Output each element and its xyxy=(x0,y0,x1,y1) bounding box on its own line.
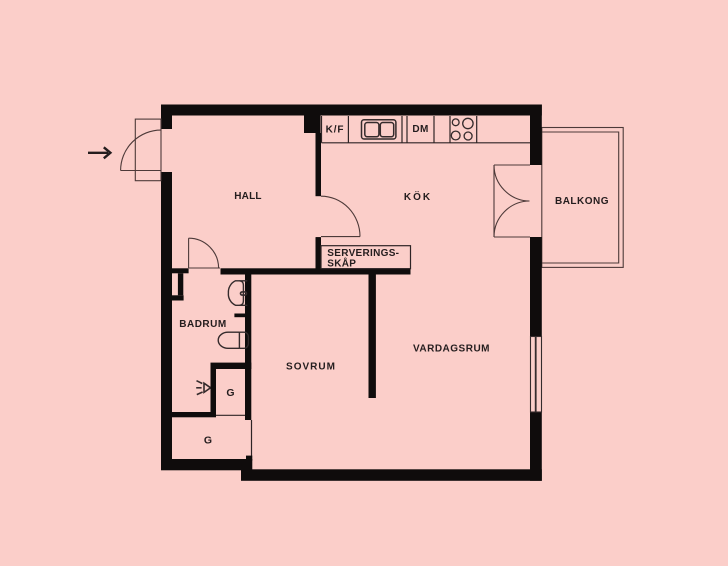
svg-text:SOVRUM: SOVRUM xyxy=(286,362,336,373)
svg-text:SKÅP: SKÅP xyxy=(327,256,356,269)
svg-text:DM: DM xyxy=(412,124,428,135)
svg-text:KÖK: KÖK xyxy=(404,190,432,203)
svg-text:SERVERINGS-: SERVERINGS- xyxy=(327,248,399,259)
svg-text:G: G xyxy=(204,435,212,447)
svg-text:VARDAGSRUM: VARDAGSRUM xyxy=(413,344,490,355)
svg-text:BADRUM: BADRUM xyxy=(179,319,226,330)
svg-text:BALKONG: BALKONG xyxy=(555,196,609,207)
svg-text:G: G xyxy=(226,387,234,399)
svg-text:HALL: HALL xyxy=(234,191,261,202)
svg-text:K/F: K/F xyxy=(326,125,345,136)
